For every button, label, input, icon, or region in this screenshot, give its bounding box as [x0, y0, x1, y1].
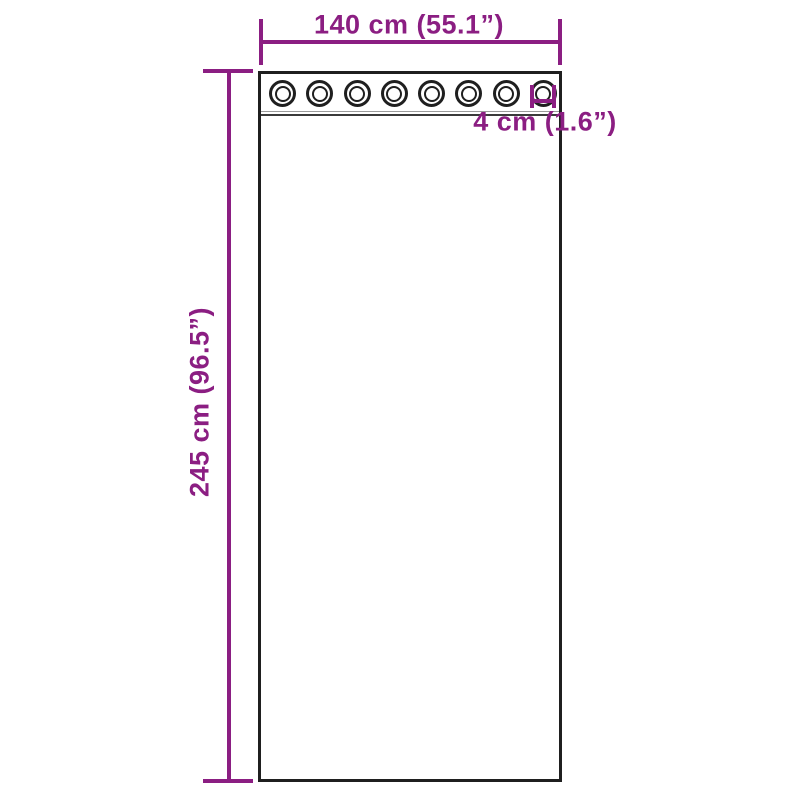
grommet-row: [269, 80, 557, 107]
width-dimension-tick-left: [259, 19, 263, 65]
width-dimension-label: 140 cm (55.1”): [314, 10, 504, 41]
grommet-inner-ring: [386, 86, 402, 102]
grommet-icon: [493, 80, 520, 107]
grommet-icon: [306, 80, 333, 107]
grommet-dimension-bar: [530, 99, 556, 103]
grommet-inner-ring: [498, 86, 514, 102]
height-dimension-line: [227, 71, 231, 781]
grommet-icon: [418, 80, 445, 107]
height-dimension-label: 245 cm (96.5”): [185, 307, 216, 497]
grommet-dimension-tick-left: [530, 85, 534, 108]
grommet-inner-ring: [312, 86, 328, 102]
grommet-inner-ring: [275, 86, 291, 102]
grommet-dimension-tick-right: [552, 85, 556, 108]
curtain-panel: [258, 71, 562, 782]
width-dimension-line: [259, 40, 561, 44]
height-dimension-tick-bottom: [203, 779, 253, 783]
height-dimension-tick-top: [203, 69, 253, 73]
grommet-inner-ring: [424, 86, 440, 102]
width-dimension-tick-right: [558, 19, 562, 65]
grommet-icon: [269, 80, 296, 107]
grommet-dimension-label: 4 cm (1.6”): [473, 107, 617, 138]
grommet-icon: [455, 80, 482, 107]
grommet-icon: [381, 80, 408, 107]
grommet-icon: [344, 80, 371, 107]
diagram-canvas: 140 cm (55.1”) 245 cm (96.5”) 4 cm (1.6”…: [0, 0, 800, 800]
grommet-inner-ring: [461, 86, 477, 102]
grommet-inner-ring: [349, 86, 365, 102]
